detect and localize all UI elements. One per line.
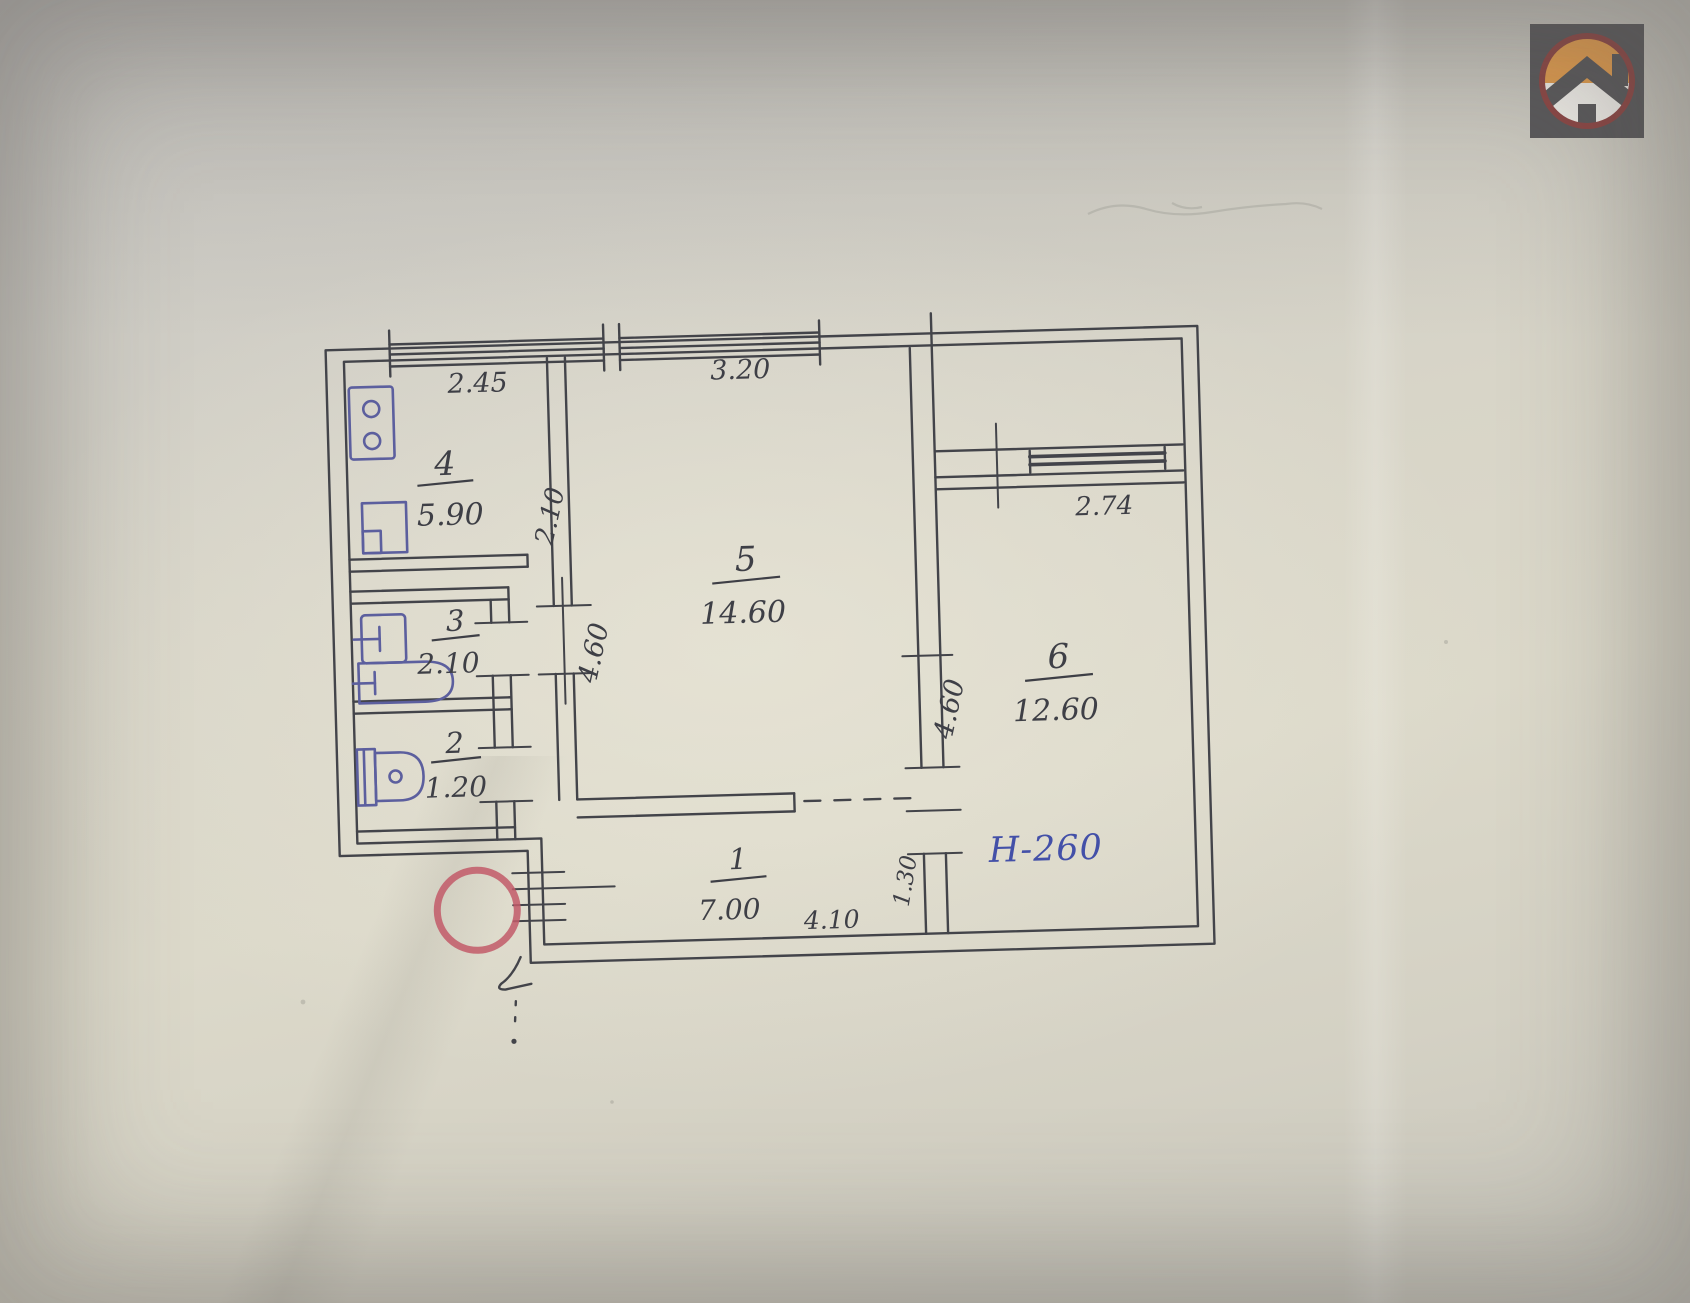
photo-vignette xyxy=(0,0,1690,1303)
scanned-floor-plan-photo: 2.45 3.20 2.74 4 5.90 2.10 4.60 4.60 1.3… xyxy=(0,0,1690,1303)
